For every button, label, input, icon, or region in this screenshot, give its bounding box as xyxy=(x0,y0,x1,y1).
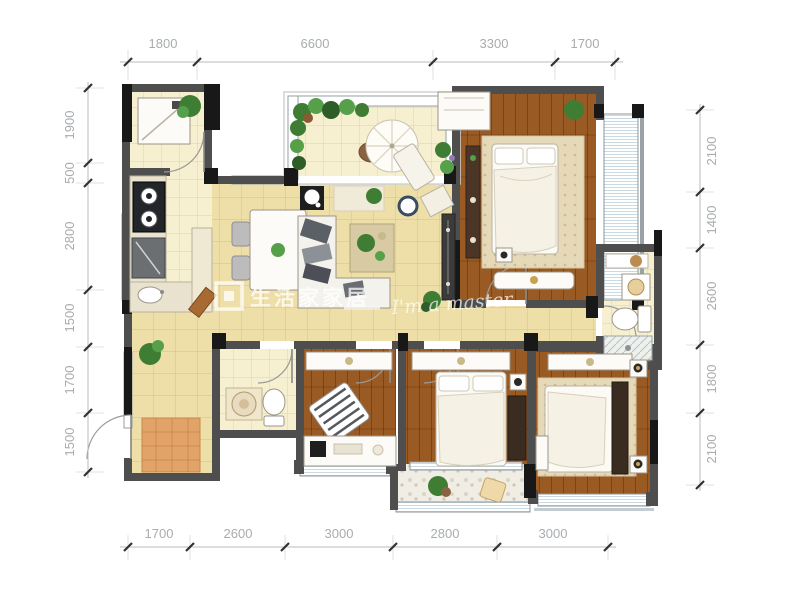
door-mat-icon xyxy=(142,418,200,472)
dim-left-2: 2800 xyxy=(62,222,77,251)
dim-left-5: 1500 xyxy=(62,428,77,457)
lamp-icon xyxy=(501,252,508,259)
dim-bottom-0: 1700 xyxy=(145,526,174,541)
dim-bottom-2: 3000 xyxy=(325,526,354,541)
floor-plan: 1800 6600 3300 1700 1700 2600 3000 2800 … xyxy=(0,0,800,589)
stove-icon xyxy=(133,182,165,232)
wardrobe-decor xyxy=(457,357,465,365)
balcony-bottom-window xyxy=(396,502,530,512)
dim-top-1: 6600 xyxy=(301,36,330,51)
kitchen-sink-icon xyxy=(138,287,162,303)
dim-left-0: 1900 xyxy=(62,111,77,140)
dresser-plant-icon xyxy=(470,155,476,161)
bedroom2-headboard-cabinet xyxy=(508,396,526,460)
cabinet-decor xyxy=(345,357,353,365)
master-toilet-icon xyxy=(612,306,651,332)
dim-left-4: 1700 xyxy=(62,366,77,395)
bathroom2-basin-icon xyxy=(226,388,262,420)
dim-right-3: 1800 xyxy=(704,365,719,394)
floor-fan-knob xyxy=(316,203,321,208)
dim-top-3: 1700 xyxy=(571,36,600,51)
plant-icon xyxy=(366,188,382,204)
dim-right-0: 2100 xyxy=(704,137,719,166)
desk-icon xyxy=(304,436,396,466)
coffee-table-icon xyxy=(350,224,394,272)
study-window xyxy=(300,466,390,476)
master-bay-window xyxy=(604,114,638,300)
master-basin-icon xyxy=(622,274,650,300)
dining-chair-icon xyxy=(232,222,250,246)
bedroom3-side-table xyxy=(536,436,548,470)
lamp-icon xyxy=(514,378,522,386)
lamp-icon xyxy=(636,366,640,370)
dim-right-4: 2100 xyxy=(704,435,719,464)
dresser-decor xyxy=(586,358,594,366)
floor-fan-blade xyxy=(305,190,320,205)
dim-top-2: 3300 xyxy=(480,36,509,51)
dim-right-2: 2600 xyxy=(704,282,719,311)
bedroom3-window-sill xyxy=(534,508,654,511)
bedroom2-bed-icon xyxy=(436,372,506,466)
bathroom2-toilet-icon xyxy=(263,389,285,426)
bench-decor xyxy=(530,276,538,284)
dim-left-3: 1500 xyxy=(62,304,77,333)
dim-left-1: 500 xyxy=(62,162,77,184)
dresser-decor xyxy=(470,237,476,243)
dining-chair-icon xyxy=(232,256,250,280)
table-centerpiece-icon xyxy=(271,243,285,257)
plant-icon xyxy=(564,100,584,120)
master-bed-icon xyxy=(492,144,558,254)
dresser-decor xyxy=(470,197,476,203)
plant-pot-icon xyxy=(441,487,451,497)
watermark-logo-icon-inner xyxy=(224,291,234,301)
bedroom3-headboard xyxy=(612,382,628,474)
bedroom3-bed-icon xyxy=(545,382,628,474)
basket-icon xyxy=(630,255,642,267)
plant-icon xyxy=(177,106,189,118)
faucet-icon xyxy=(160,290,164,294)
plant-icon xyxy=(152,340,164,352)
dim-bottom-4: 3000 xyxy=(539,526,568,541)
bedroom3-window xyxy=(538,494,650,506)
media-cabinet-icon xyxy=(442,214,455,300)
dim-right-1: 1400 xyxy=(704,206,719,235)
dim-bottom-3: 2800 xyxy=(431,526,460,541)
master-bay-window-sill xyxy=(640,114,644,300)
lamp-icon xyxy=(636,462,640,466)
floor-plan-page: 1800 6600 3300 1700 1700 2600 3000 2800 … xyxy=(0,0,800,589)
round-stool-icon xyxy=(399,197,417,215)
dim-top-0: 1800 xyxy=(149,36,178,51)
watermark-brand-text: 生活家家居 xyxy=(250,286,370,310)
dim-bottom-1: 2600 xyxy=(224,526,253,541)
